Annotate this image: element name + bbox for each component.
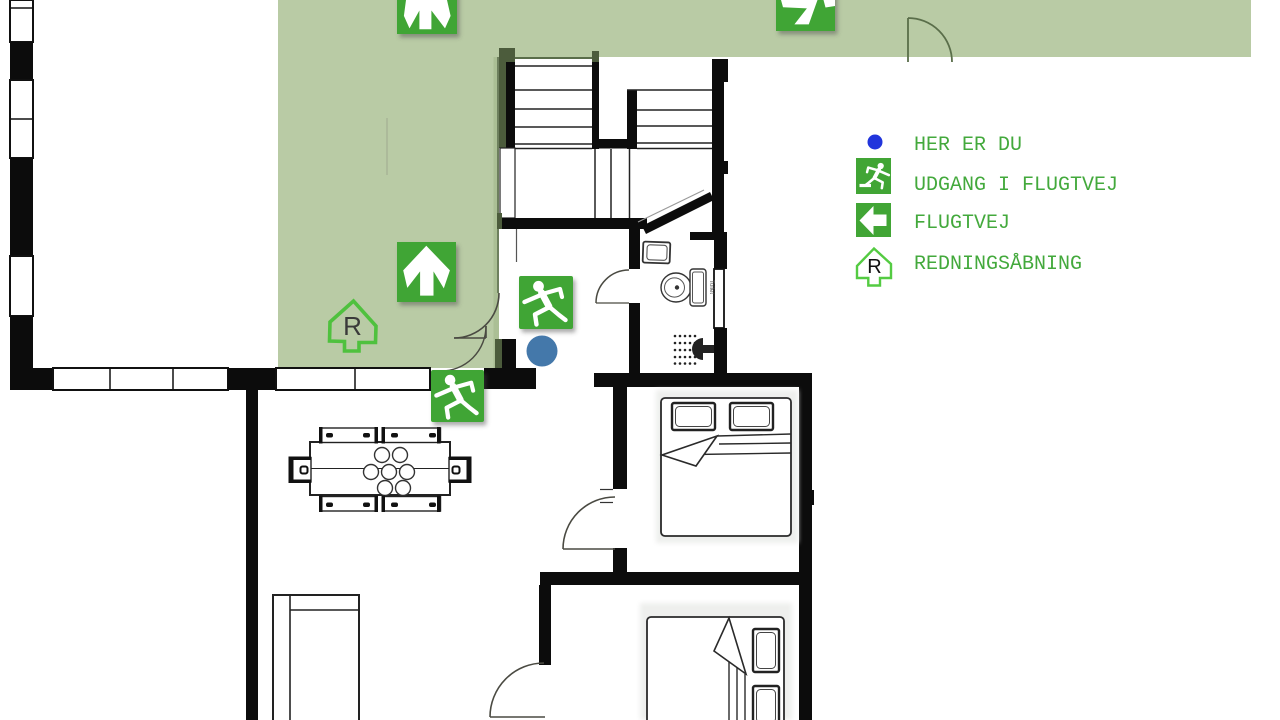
svg-text:R: R <box>343 311 362 341</box>
svg-text:FLUGTVEJ: FLUGTVEJ <box>914 212 1010 235</box>
svg-text:Toilet: Toilet <box>708 280 714 294</box>
svg-text:R: R <box>867 256 881 278</box>
svg-text:HER ER DU: HER ER DU <box>914 134 1022 157</box>
svg-text:REDNINGSÅBNING: REDNINGSÅBNING <box>914 253 1082 276</box>
svg-text:UDGANG I FLUGTVEJ: UDGANG I FLUGTVEJ <box>914 174 1118 197</box>
